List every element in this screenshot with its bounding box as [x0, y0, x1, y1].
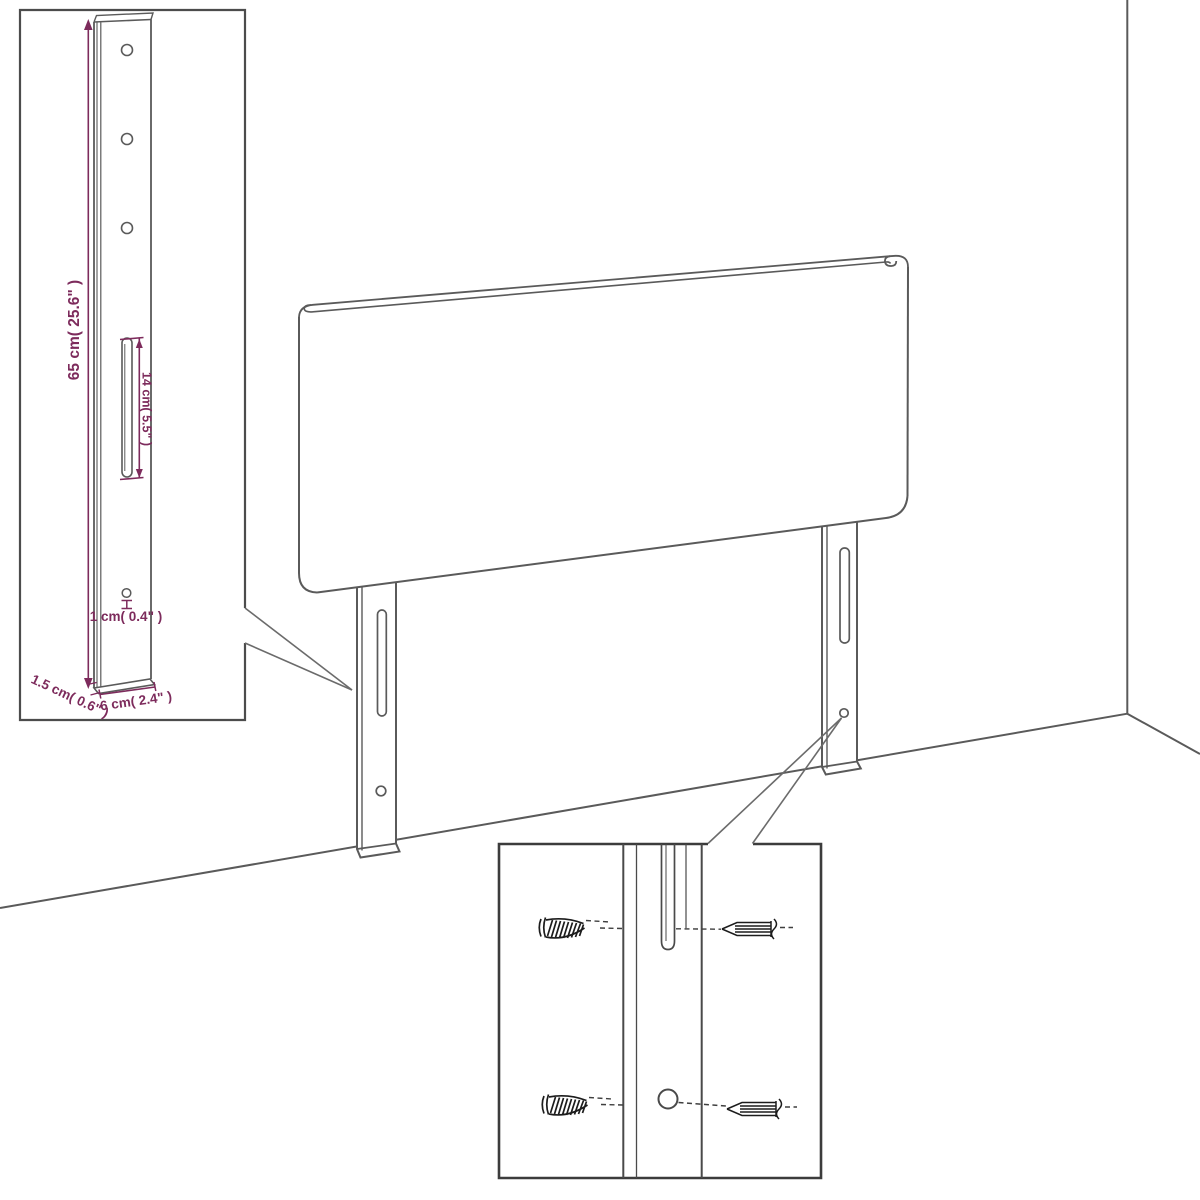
headboard-panel: [299, 254, 908, 592]
inset-top-left: 65 cm( 25.6" ) 14 cm( 5.5" ) 1 cm( 0.4" …: [20, 10, 245, 720]
guide-top-left-b: [600, 928, 622, 929]
label-height: 65 cm( 25.6" ): [66, 280, 83, 380]
guide-bottom-left-b: [601, 1105, 623, 1106]
callout-lines: [245, 608, 842, 844]
right-leg-hole: [840, 709, 848, 717]
callout-bottom-a: [708, 718, 842, 844]
callout-top-left-a: [245, 608, 352, 690]
left-leg-slot: [378, 610, 387, 716]
inset-bottom-bg: [499, 844, 821, 1178]
label-slot-length: 14 cm( 5.5" ): [140, 372, 154, 446]
headboard-right-edge: [908, 267, 909, 496]
left-leg: [357, 566, 400, 858]
inset-bottom: [499, 844, 821, 1178]
right-leg-slot: [840, 548, 849, 643]
floor-line-right: [1127, 714, 1200, 754]
callout-top-left-b: [245, 643, 352, 690]
callout-bottom-b: [753, 718, 842, 844]
diagram-image: 65 cm( 25.6" ) 14 cm( 5.5" ) 1 cm( 0.4" …: [0, 0, 1200, 1200]
right-leg: [822, 510, 861, 775]
assembly-diagram-svg: 65 cm( 25.6" ) 14 cm( 5.5" ) 1 cm( 0.4" …: [0, 0, 1200, 1200]
label-hole: 1 cm( 0.4" ): [90, 609, 162, 624]
left-leg-hole: [376, 786, 386, 796]
